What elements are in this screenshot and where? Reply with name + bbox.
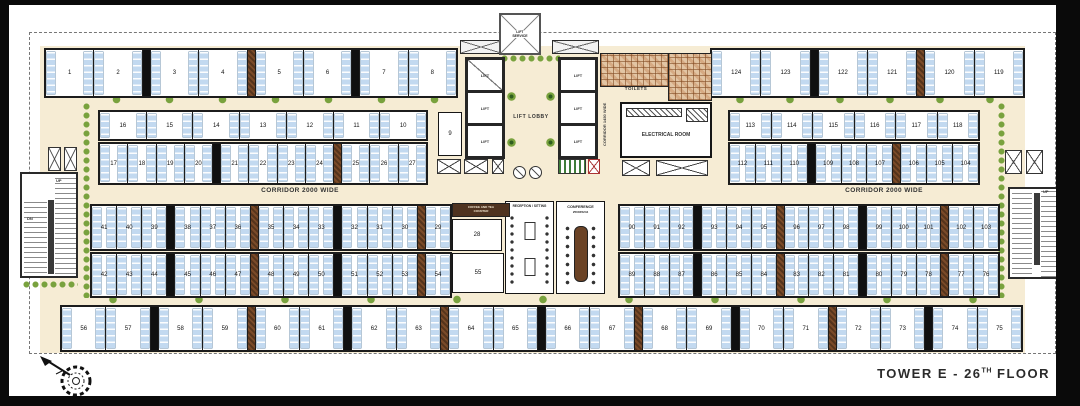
conference-size-label: 2500X5244 (557, 210, 604, 214)
fire-duct (588, 159, 600, 174)
unit-number: 75 (978, 307, 1021, 350)
unit-104: 104 (953, 144, 978, 183)
stair-dn-label: DN (27, 216, 33, 221)
unit-row-mid-right-top: 90919293949596979899100101102103 (618, 204, 1000, 251)
north-compass-icon (32, 354, 102, 402)
structural-column (893, 144, 900, 183)
unit-25: 25 (342, 144, 369, 183)
unit-66: 66 (546, 307, 589, 350)
unit-number: 33 (309, 206, 333, 249)
unit-number: 36 (226, 206, 250, 249)
reception-seats-left (509, 214, 515, 287)
structural-column (777, 206, 784, 249)
unit-82: 82 (809, 254, 833, 296)
unit-number: 12 (287, 112, 333, 139)
unit-103: 103 (974, 206, 998, 249)
unit-number: 65 (494, 307, 537, 350)
unit-number: 29 (426, 206, 450, 249)
structural-column (334, 144, 341, 183)
unit-18: 18 (128, 144, 155, 183)
unit-23: 23 (278, 144, 305, 183)
unit-number: 16 (100, 112, 146, 139)
unit-46: 46 (201, 254, 225, 296)
unit-number: 59 (203, 307, 246, 350)
unit-number: 97 (809, 206, 833, 249)
unit-20: 20 (185, 144, 212, 183)
stair-up-label: UP (56, 178, 62, 183)
unit-number: 18 (128, 144, 155, 183)
toilets-tiled-area (668, 53, 712, 101)
unit-71: 71 (784, 307, 827, 350)
unit-15: 15 (147, 112, 193, 139)
unit-number: 64 (449, 307, 492, 350)
unit-26: 26 (370, 144, 397, 183)
electrical-equipment (686, 108, 708, 122)
unit-row-mid-right-bottom: 8988878685848382818079787776 (618, 252, 1000, 298)
unit-number: 14 (193, 112, 239, 139)
unit-124: 124 (712, 50, 760, 96)
hedge-stair-left (22, 280, 78, 289)
unit-63: 63 (397, 307, 440, 350)
unit-75: 75 (978, 307, 1021, 350)
stair-wall (48, 200, 54, 274)
unit-36: 36 (226, 206, 250, 249)
lobby-plant (546, 138, 555, 147)
unit-row-mid-left-bottom: 42434445464748495051525354 (90, 252, 452, 298)
unit-number: 6 (304, 50, 351, 96)
toilets-label: TOILETS (603, 86, 669, 91)
unit-number: 69 (687, 307, 730, 350)
unit-number: 99 (867, 206, 891, 249)
lobby-plant (546, 92, 555, 101)
unit-number: 3 (151, 50, 198, 96)
unit-number: 22 (249, 144, 276, 183)
unit-number: 56 (62, 307, 105, 350)
unit-91: 91 (645, 206, 669, 249)
unit-row-mid-left-top: 41403938373635343332313029 (90, 204, 452, 251)
unit-number: 28 (453, 220, 501, 250)
frame-border-bottom (0, 396, 1080, 406)
unit-number: 122 (819, 50, 867, 96)
structural-column (213, 144, 220, 183)
unit-94: 94 (727, 206, 751, 249)
unit-number: 50 (309, 254, 333, 296)
unit-76: 76 (974, 254, 998, 296)
unit-row-bottom: 5657585960616263646566676869707172737475 (60, 305, 1023, 352)
services-duct (558, 159, 586, 174)
unit-114: 114 (772, 112, 813, 139)
structural-column (251, 206, 258, 249)
unit-number: 115 (813, 112, 854, 139)
unit-number: 66 (546, 307, 589, 350)
unit-115: 115 (813, 112, 854, 139)
unit-112: 112 (730, 144, 755, 183)
structural-column (418, 206, 425, 249)
unit-24: 24 (306, 144, 333, 183)
reception-label: RECEPTION / SITTING (506, 204, 553, 208)
conference-label: CONFERENCE (557, 205, 604, 209)
unit-row-band2-right-bottom: 112111110109108107106105104 (728, 142, 980, 185)
unit-78: 78 (917, 254, 941, 296)
unit-number: 32 (342, 206, 366, 249)
unit-row-top-right: 124123122121120119 (710, 48, 1025, 98)
unit-number: 57 (106, 307, 149, 350)
unit-number: 21 (221, 144, 248, 183)
unit-number: 76 (974, 254, 998, 296)
unit-120: 120 (925, 50, 973, 96)
unit-number: 54 (426, 254, 450, 296)
floor-plan-canvas: 12345678 124123122121120119 161514131211… (0, 0, 1080, 406)
unit-number: 7 (360, 50, 407, 96)
unit-number: 89 (620, 254, 644, 296)
unit-111: 111 (756, 144, 781, 183)
unit-96: 96 (785, 206, 809, 249)
frame-border-right (1056, 0, 1080, 406)
unit-73: 73 (881, 307, 924, 350)
structural-column (811, 50, 818, 96)
unit-number: 40 (117, 206, 141, 249)
shaft-box (622, 160, 650, 176)
unit-107: 107 (867, 144, 892, 183)
unit-10: 10 (380, 112, 426, 139)
stair-wall (1034, 193, 1040, 265)
unit-number: 114 (772, 112, 813, 139)
unit-number: 60 (256, 307, 299, 350)
unit-47: 47 (226, 254, 250, 296)
structural-column (248, 50, 255, 96)
unit-number: 10 (380, 112, 426, 139)
unit-number: 87 (670, 254, 694, 296)
unit-50: 50 (309, 254, 333, 296)
unit-number: 25 (342, 144, 369, 183)
unit-number: 31 (368, 206, 392, 249)
unit-5: 5 (256, 50, 303, 96)
structural-column (251, 254, 258, 296)
conference-room: CONFERENCE 2500X5244 (556, 201, 605, 294)
unit-19: 19 (157, 144, 184, 183)
unit-12: 12 (287, 112, 333, 139)
unit-number: 8 (409, 50, 456, 96)
frame-border-top (0, 0, 1080, 5)
unit-number: 110 (782, 144, 807, 183)
unit-72: 72 (837, 307, 880, 350)
round-column (513, 166, 526, 179)
unit-118: 118 (938, 112, 979, 139)
unit-number: 92 (670, 206, 694, 249)
lobby-plant (507, 92, 516, 101)
unit-44: 44 (142, 254, 166, 296)
unit-number: 19 (157, 144, 184, 183)
electrical-room-label: ELECTRICAL ROOM (622, 132, 710, 138)
service-lift-label-2: SERVICE (512, 34, 527, 38)
unit-number: 81 (834, 254, 858, 296)
structural-column (334, 206, 341, 249)
coffee-counter: COFFEE AND TEA COUNTER (452, 203, 510, 217)
structural-column (941, 254, 948, 296)
unit-number: 51 (342, 254, 366, 296)
lift-6: LIFT (561, 126, 595, 156)
unit-number: 106 (901, 144, 926, 183)
unit-row-band2-left-top: 16151413121110 (98, 110, 428, 141)
structural-column (352, 50, 359, 96)
lift-5: LIFT (561, 93, 595, 123)
structural-column (694, 206, 701, 249)
lift-bank-left: LIFT LIFT LIFT (465, 57, 505, 159)
structural-column (635, 307, 642, 350)
unit-49: 49 (284, 254, 308, 296)
unit-number: 49 (284, 254, 308, 296)
unit-number: 37 (201, 206, 225, 249)
unit-95: 95 (752, 206, 776, 249)
unit-37: 37 (201, 206, 225, 249)
unit-number: 113 (730, 112, 771, 139)
unit-row-band2-left-bottom: 1718192021222324252627 (98, 142, 428, 185)
unit-number: 2 (94, 50, 141, 96)
unit-number: 111 (756, 144, 781, 183)
unit-56: 56 (62, 307, 105, 350)
reception-table (524, 258, 535, 276)
corridor-label-right: CORRIDOR 2000 WIDE (832, 187, 936, 194)
unit-number: 63 (397, 307, 440, 350)
canopy-left (460, 40, 502, 54)
unit-70: 70 (740, 307, 783, 350)
unit-122: 122 (819, 50, 867, 96)
structural-column (829, 307, 836, 350)
unit-number: 120 (925, 50, 973, 96)
structural-column (418, 254, 425, 296)
unit-54: 54 (426, 254, 450, 296)
unit-number: 79 (892, 254, 916, 296)
canopy-right (552, 40, 599, 54)
structural-column (694, 254, 701, 296)
structural-column (143, 50, 150, 96)
unit-64: 64 (449, 307, 492, 350)
unit-43: 43 (117, 254, 141, 296)
reception-room: RECEPTION / SITTING (505, 201, 554, 294)
unit-22: 22 (249, 144, 276, 183)
structural-column (859, 254, 866, 296)
unit-number: 5 (256, 50, 303, 96)
lift-lobby-label: LIFT LOBBY (500, 114, 562, 120)
unit-85: 85 (727, 254, 751, 296)
stair-flight (24, 202, 47, 274)
unit-number: 46 (201, 254, 225, 296)
unit-number: 90 (620, 206, 644, 249)
unit-number: 100 (892, 206, 916, 249)
unit-number: 116 (855, 112, 896, 139)
unit-number: 104 (953, 144, 978, 183)
unit-29: 29 (426, 206, 450, 249)
unit-number: 42 (92, 254, 116, 296)
structural-column (941, 206, 948, 249)
unit-102: 102 (949, 206, 973, 249)
structural-column (151, 307, 158, 350)
unit-number: 117 (896, 112, 937, 139)
unit-number: 67 (590, 307, 633, 350)
unit-number: 109 (816, 144, 841, 183)
unit-4: 4 (199, 50, 246, 96)
unit-number: 68 (643, 307, 686, 350)
unit-81: 81 (834, 254, 858, 296)
unit-number: 4 (199, 50, 246, 96)
unit-number: 88 (645, 254, 669, 296)
lobby-plant (507, 138, 516, 147)
unit-number: 44 (142, 254, 166, 296)
unit-8: 8 (409, 50, 456, 96)
structural-column (344, 307, 351, 350)
unit-number: 58 (159, 307, 202, 350)
stair-flight (55, 178, 76, 274)
unit-number: 1 (46, 50, 93, 96)
unit-59: 59 (203, 307, 246, 350)
unit-number: 98 (834, 206, 858, 249)
unit-number: 85 (727, 254, 751, 296)
unit-83: 83 (785, 254, 809, 296)
reception-table (524, 222, 535, 240)
unit-90: 90 (620, 206, 644, 249)
plan-title: TOWER E - 26TH FLOOR (860, 366, 1050, 381)
unit-number: 123 (761, 50, 809, 96)
unit-number: 103 (974, 206, 998, 249)
unit-106: 106 (901, 144, 926, 183)
unit-13: 13 (240, 112, 286, 139)
unit-108: 108 (842, 144, 867, 183)
unit-number: 24 (306, 144, 333, 183)
unit-87: 87 (670, 254, 694, 296)
structural-column (441, 307, 448, 350)
unit-60: 60 (256, 307, 299, 350)
unit-48: 48 (259, 254, 283, 296)
conference-chairs-right (590, 224, 597, 285)
unit-57: 57 (106, 307, 149, 350)
unit-79: 79 (892, 254, 916, 296)
plan-title-tail: FLOOR (992, 366, 1050, 381)
unit-number: 34 (284, 206, 308, 249)
unit-99: 99 (867, 206, 891, 249)
unit-3: 3 (151, 50, 198, 96)
unit-61: 61 (300, 307, 343, 350)
unit-119: 119 (975, 50, 1023, 96)
unit-69: 69 (687, 307, 730, 350)
structural-column (732, 307, 739, 350)
unit-number: 119 (975, 50, 1023, 96)
service-lift: LIFT SERVICE (499, 13, 541, 55)
unit-number: 70 (740, 307, 783, 350)
unit-74: 74 (933, 307, 976, 350)
unit-27: 27 (399, 144, 426, 183)
unit-53: 53 (393, 254, 417, 296)
unit-11: 11 (334, 112, 380, 139)
unit-number: 83 (785, 254, 809, 296)
unit-45: 45 (175, 254, 199, 296)
structural-column (925, 307, 932, 350)
stair-flight (1012, 193, 1032, 277)
unit-number: 55 (453, 254, 503, 292)
structural-column (538, 307, 545, 350)
electrical-equipment (626, 108, 682, 117)
unit-38: 38 (175, 206, 199, 249)
unit-number: 84 (752, 254, 776, 296)
unit-number: 72 (837, 307, 880, 350)
unit-51: 51 (342, 254, 366, 296)
lift-1: LIFT (468, 60, 502, 90)
unit-16: 16 (100, 112, 146, 139)
structural-column (917, 50, 924, 96)
lift-3: LIFT (468, 126, 502, 156)
round-column (529, 166, 542, 179)
unit-row-top-left: 12345678 (44, 48, 458, 98)
unit-row-band2-right-top: 113114115116117118 (728, 110, 980, 141)
unit-number: 74 (933, 307, 976, 350)
structural-column (334, 254, 341, 296)
unit-31: 31 (368, 206, 392, 249)
unit-number: 23 (278, 144, 305, 183)
corridor-label-center: CORRIDOR 1450 WIDE (602, 94, 613, 154)
shaft-box (492, 159, 504, 174)
unit-number: 73 (881, 307, 924, 350)
unit-number: 48 (259, 254, 283, 296)
unit-52: 52 (368, 254, 392, 296)
unit-number: 112 (730, 144, 755, 183)
shaft-box (1005, 150, 1022, 174)
unit-84: 84 (752, 254, 776, 296)
unit-number: 121 (868, 50, 916, 96)
lift-4: LIFT (561, 60, 595, 90)
structural-column (167, 206, 174, 249)
unit-number: 101 (917, 206, 941, 249)
unit-number: 43 (117, 254, 141, 296)
unit-number: 27 (399, 144, 426, 183)
unit-109: 109 (816, 144, 841, 183)
unit-62: 62 (352, 307, 395, 350)
unit-32: 32 (342, 206, 366, 249)
unit-97: 97 (809, 206, 833, 249)
unit-93: 93 (702, 206, 726, 249)
unit-105: 105 (927, 144, 952, 183)
unit-116: 116 (855, 112, 896, 139)
unit-35: 35 (259, 206, 283, 249)
plan-title-superscript: TH (982, 368, 992, 375)
unit-117: 117 (896, 112, 937, 139)
unit-number: 9 (439, 113, 461, 155)
unit-110: 110 (782, 144, 807, 183)
unit-2: 2 (94, 50, 141, 96)
unit-121: 121 (868, 50, 916, 96)
unit-14: 14 (193, 112, 239, 139)
unit-67: 67 (590, 307, 633, 350)
staircase-left (20, 172, 78, 278)
unit-77: 77 (949, 254, 973, 296)
unit-number: 45 (175, 254, 199, 296)
unit-number: 30 (393, 206, 417, 249)
unit-92: 92 (670, 206, 694, 249)
unit-86: 86 (702, 254, 726, 296)
shaft-box (656, 160, 708, 176)
electrical-room: ELECTRICAL ROOM (620, 102, 712, 158)
shaft-box (48, 147, 61, 171)
structural-column (167, 254, 174, 296)
unit-58: 58 (159, 307, 202, 350)
conference-table (574, 226, 588, 282)
unit-number: 78 (917, 254, 941, 296)
frame-border-left (0, 0, 9, 406)
unit-number: 62 (352, 307, 395, 350)
unit-number: 26 (370, 144, 397, 183)
unit-number: 77 (949, 254, 973, 296)
structural-column (859, 206, 866, 249)
unit-number: 38 (175, 206, 199, 249)
unit-88: 88 (645, 254, 669, 296)
